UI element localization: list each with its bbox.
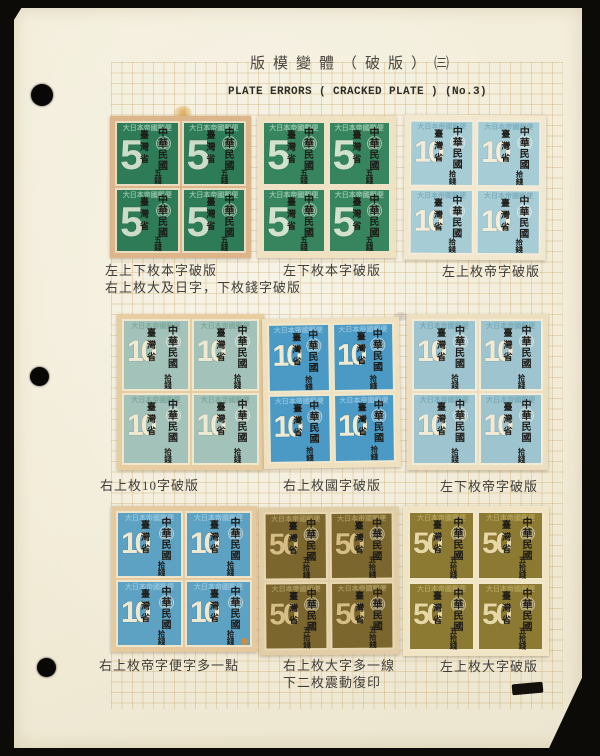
stamp-design: 大日本帝國郵便 10 臺灣省 中華民國 拾錢 xyxy=(411,122,472,185)
stamp: 大日本帝國郵便 50 臺灣省 中華民國 五拾錢 xyxy=(330,512,394,580)
overprint-denomination: 拾錢 xyxy=(514,170,525,185)
overprint-republic-of-china: 中華民國 xyxy=(233,399,248,443)
stamp: 大日本帝國郵便 10 臺灣省 中華民國 拾錢 xyxy=(116,580,183,647)
overprint-denomination: 五拾錢 xyxy=(301,626,312,649)
punch-hole xyxy=(37,658,56,677)
stamp: 大日本帝國郵便 10 臺灣省 中華民國 拾錢 xyxy=(185,511,252,578)
stamp: 大日本帝國郵便 10 臺灣省 中華民國 拾錢 xyxy=(412,319,477,391)
overprint-denomination: 五錢 xyxy=(153,236,164,251)
stamp-block: 大日本帝國郵便 10 臺灣省 中華民國 拾錢 大日本帝國郵便 10 臺灣省 中華… xyxy=(111,506,257,652)
block-caption: 左下枚本字破版 xyxy=(283,262,381,279)
stamp: 大日本帝國郵便 5 臺灣省 中華民國 五錢 xyxy=(262,188,326,253)
stamp-design: 大日本帝國郵便 10 臺灣省 中華民國 拾錢 xyxy=(478,191,539,254)
overprint-denomination: 五拾錢 xyxy=(367,555,378,578)
overprint-denomination: 拾錢 xyxy=(304,446,315,461)
overprint-taiwan-province: 臺灣省 xyxy=(432,197,445,233)
overprint-taiwan-province: 臺灣省 xyxy=(499,129,512,165)
overprint-denomination: 五拾錢 xyxy=(448,627,459,650)
stamp-design: 大日本帝國郵便 10 臺灣省 中華民國 拾錢 xyxy=(481,395,542,463)
scan-background: 版模變體（破版）㈢ PLATE ERRORS ( CRACKED PLATE )… xyxy=(0,0,600,756)
stamp-design: 大日本帝國郵便 50 臺灣省 中華民國 五拾錢 xyxy=(266,584,326,648)
overprint-republic-of-china: 中華民國 xyxy=(449,517,464,561)
caption-line: 左上下枚本字破版 xyxy=(105,262,301,279)
stamp: 大日本帝國郵便 5 臺灣省 中華民國 五錢 xyxy=(115,121,180,186)
overprint-republic-of-china: 中華民國 xyxy=(164,399,179,443)
overprint-denomination: 五錢 xyxy=(219,236,230,251)
stamp-grid: 大日本帝國郵便 5 臺灣省 中華民國 五錢 大日本帝國郵便 5 臺灣省 中華民國… xyxy=(262,121,391,253)
overprint-republic-of-china: 中華民國 xyxy=(369,399,385,443)
overprint-denomination: 拾錢 xyxy=(450,448,461,463)
stamp-design: 大日本帝國郵便 10 臺灣省 中華民國 拾錢 xyxy=(118,582,181,645)
overprint-taiwan-province: 臺灣省 xyxy=(499,198,512,234)
overprint-taiwan-province: 臺灣省 xyxy=(432,129,445,165)
overprint-taiwan-province: 臺灣省 xyxy=(435,328,448,364)
stamp-grid: 大日本帝國郵便 50 臺灣省 中華民國 五拾錢 大日本帝國郵便 50 臺灣省 中… xyxy=(264,512,395,651)
stamp-design: 大日本帝國郵便 50 臺灣省 中華民國 五拾錢 xyxy=(410,584,473,649)
overprint-denomination: 拾錢 xyxy=(450,374,461,389)
stamp-design: 大日本帝國郵便 5 臺灣省 中華民國 五錢 xyxy=(117,190,178,251)
stamp-design: 大日本帝國郵便 10 臺灣省 中華民國 拾錢 xyxy=(335,395,394,461)
overprint-republic-of-china: 中華民國 xyxy=(154,194,169,238)
overprint-republic-of-china: 中華民國 xyxy=(518,588,533,632)
block-caption: 左下枚帝字破版 xyxy=(440,478,538,495)
overprint-denomination: 拾錢 xyxy=(163,448,174,463)
overprint-denomination: 五錢 xyxy=(299,169,310,184)
overprint-taiwan-province: 臺灣省 xyxy=(138,130,151,166)
overprint-republic-of-china: 中華民國 xyxy=(448,126,463,170)
overprint-taiwan-province: 臺灣省 xyxy=(353,521,366,557)
stamp-design: 大日本帝國郵便 10 臺灣省 中華民國 拾錢 xyxy=(187,513,250,576)
overprint-taiwan-province: 臺灣省 xyxy=(287,521,300,557)
page-title-chinese: 版模變體（破版）㈢ xyxy=(250,52,550,73)
stamp-design: 大日本帝國郵便 5 臺灣省 中華民國 五錢 xyxy=(330,123,390,184)
stamp-block: 大日本帝國郵便 5 臺灣省 中華民國 五錢 大日本帝國郵便 5 臺灣省 中華民國… xyxy=(257,116,396,258)
stamp-design: 大日本帝國郵便 10 臺灣省 中華民國 拾錢 xyxy=(334,324,393,390)
overprint-taiwan-province: 臺灣省 xyxy=(287,591,300,627)
overprint-republic-of-china: 中華民國 xyxy=(517,399,532,443)
caption-line: 左上枚大字破版 xyxy=(440,658,538,675)
overprint-denomination: 拾錢 xyxy=(232,374,243,389)
overprint-taiwan-province: 臺灣省 xyxy=(500,520,513,556)
stamp: 大日本帝國郵便 50 臺灣省 中華民國 五拾錢 xyxy=(264,512,328,580)
overprint-denomination: 拾錢 xyxy=(368,374,379,389)
stamp: 大日本帝國郵便 5 臺灣省 中華民國 五錢 xyxy=(115,188,180,253)
stamp-design: 大日本帝國郵便 50 臺灣省 中華民國 五拾錢 xyxy=(266,514,326,578)
stamp: 大日本帝國郵便 5 臺灣省 中華民國 五錢 xyxy=(262,121,326,186)
stamp: 大日本帝國郵便 10 臺灣省 中華民國 拾錢 xyxy=(192,319,260,391)
overprint-taiwan-province: 臺灣省 xyxy=(205,197,218,233)
overprint-republic-of-china: 中華民國 xyxy=(451,399,466,443)
overprint-taiwan-province: 臺灣省 xyxy=(145,402,158,438)
block-caption: 左上枚帝字破版 xyxy=(442,263,540,280)
overprint-denomination: 五錢 xyxy=(364,169,375,184)
stamp: 大日本帝國郵便 10 臺灣省 中華民國 拾錢 xyxy=(409,188,474,255)
page-title-english: PLATE ERRORS ( CRACKED PLATE ) (No.3) xyxy=(228,86,548,98)
overprint-republic-of-china: 中華民國 xyxy=(226,586,241,630)
stamp: 大日本帝國郵便 50 臺灣省 中華民國 五拾錢 xyxy=(408,511,475,580)
caption-line: 下二枚震動復印 xyxy=(283,674,395,691)
stamp-design: 大日本帝國郵便 5 臺灣省 中華民國 五錢 xyxy=(184,123,245,184)
overprint-republic-of-china: 中華民國 xyxy=(451,325,466,369)
stamp: 大日本帝國郵便 10 臺灣省 中華民國 拾錢 xyxy=(267,323,330,393)
stamp-design: 大日本帝國郵便 10 臺灣省 中華民國 拾錢 xyxy=(269,325,328,391)
stamp-design: 大日本帝國郵便 10 臺灣省 中華民國 拾錢 xyxy=(481,321,542,389)
overprint-denomination: 拾錢 xyxy=(225,561,236,576)
overprint-taiwan-province: 臺灣省 xyxy=(502,328,515,364)
stamp-design: 大日本帝國郵便 10 臺灣省 中華民國 拾錢 xyxy=(194,321,258,389)
overprint-republic-of-china: 中華民國 xyxy=(154,127,169,171)
overprint-republic-of-china: 中華民國 xyxy=(157,586,172,630)
stamp-block: 大日本帝國郵便 50 臺灣省 中華民國 五拾錢 大日本帝國郵便 50 臺灣省 中… xyxy=(258,507,399,656)
overprint-denomination: 五拾錢 xyxy=(301,556,312,579)
overprint-taiwan-province: 臺灣省 xyxy=(208,589,221,625)
stamp-design: 大日本帝國郵便 50 臺灣省 中華民國 五拾錢 xyxy=(479,513,542,578)
overprint-denomination: 拾錢 xyxy=(225,630,236,645)
overprint-denomination: 五錢 xyxy=(299,236,310,251)
overprint-republic-of-china: 中華民國 xyxy=(220,127,235,171)
stamp: 大日本帝國郵便 10 臺灣省 中華民國 拾錢 xyxy=(479,319,544,391)
stamp-design: 大日本帝國郵便 10 臺灣省 中華民國 拾錢 xyxy=(124,321,188,389)
overprint-republic-of-china: 中華民國 xyxy=(515,126,530,170)
stamp-design: 大日本帝國郵便 10 臺灣省 中華民國 拾錢 xyxy=(187,582,250,645)
caption-line: 左下枚帝字破版 xyxy=(440,478,538,495)
stamp: 大日本帝國郵便 50 臺灣省 中華民國 五拾錢 xyxy=(264,582,328,650)
overprint-republic-of-china: 中華民國 xyxy=(300,127,315,171)
stamp: 大日本帝國郵便 10 臺灣省 中華民國 拾錢 xyxy=(476,189,541,256)
overprint-taiwan-province: 臺灣省 xyxy=(351,130,364,166)
overprint-denomination: 拾錢 xyxy=(447,238,458,253)
overprint-republic-of-china: 中華民國 xyxy=(157,517,172,561)
stamp: 大日本帝國郵便 5 臺灣省 中華民國 五錢 xyxy=(182,121,247,186)
punch-hole xyxy=(31,84,53,106)
overprint-denomination: 五拾錢 xyxy=(367,625,378,648)
overprint-taiwan-province: 臺灣省 xyxy=(353,591,366,627)
overprint-taiwan-province: 臺灣省 xyxy=(500,591,513,627)
caption-line: 右上枚帝字便字多一點 xyxy=(99,657,239,674)
block-caption: 右上枚帝字便字多一點 xyxy=(99,657,239,674)
stamp: 大日本帝國郵便 5 臺灣省 中華民國 五錢 xyxy=(328,121,392,186)
block-caption: 右上枚大字多一線下二枚震動復印 xyxy=(283,657,395,691)
stamp: 大日本帝國郵便 10 臺灣省 中華民國 拾錢 xyxy=(116,511,183,578)
overprint-denomination: 五拾錢 xyxy=(448,556,459,579)
stamp-design: 大日本帝國郵便 5 臺灣省 中華民國 五錢 xyxy=(330,190,390,251)
overprint-denomination: 拾錢 xyxy=(232,448,243,463)
overprint-republic-of-china: 中華民國 xyxy=(305,400,321,444)
stamp: 大日本帝國郵便 10 臺灣省 中華民國 拾錢 xyxy=(192,393,260,465)
stamp-grid: 大日本帝國郵便 10 臺灣省 中華民國 拾錢 大日本帝國郵便 10 臺灣省 中華… xyxy=(412,319,543,465)
overprint-taiwan-province: 臺灣省 xyxy=(355,331,369,367)
overprint-taiwan-province: 臺灣省 xyxy=(502,402,515,438)
stamp-design: 大日本帝國郵便 10 臺灣省 中華民國 拾錢 xyxy=(478,122,539,185)
overprint-republic-of-china: 中華民國 xyxy=(365,127,380,171)
caption-line: 右上枚國字破版 xyxy=(283,477,381,494)
overprint-taiwan-province: 臺灣省 xyxy=(356,402,370,438)
overprint-denomination: 拾錢 xyxy=(514,238,525,253)
stamp: 大日本帝國郵便 5 臺灣省 中華民國 五錢 xyxy=(328,188,392,253)
stamp: 大日本帝國郵便 10 臺灣省 中華民國 拾錢 xyxy=(333,393,396,463)
stamp-block: 大日本帝國郵便 10 臺灣省 中華民國 拾錢 大日本帝國郵便 10 臺灣省 中華… xyxy=(117,314,264,470)
stamp-design: 大日本帝國郵便 50 臺灣省 中華民國 五拾錢 xyxy=(332,584,392,648)
stamp-design: 大日本帝國郵便 10 臺灣省 中華民國 拾錢 xyxy=(414,395,475,463)
overprint-taiwan-province: 臺灣省 xyxy=(205,130,218,166)
stamp: 大日本帝國郵便 10 臺灣省 中華民國 拾錢 xyxy=(185,580,252,647)
overprint-taiwan-province: 臺灣省 xyxy=(285,197,298,233)
stamp-grid: 大日本帝國郵便 10 臺灣省 中華民國 拾錢 大日本帝國郵便 10 臺灣省 中華… xyxy=(267,322,396,464)
overprint-taiwan-province: 臺灣省 xyxy=(139,589,152,625)
overprint-taiwan-province: 臺灣省 xyxy=(290,332,304,368)
overprint-denomination: 拾錢 xyxy=(156,561,167,576)
overprint-republic-of-china: 中華民國 xyxy=(233,325,248,369)
overprint-taiwan-province: 臺灣省 xyxy=(139,520,152,556)
overprint-taiwan-province: 臺灣省 xyxy=(351,197,364,233)
stamp: 大日本帝國郵便 10 臺灣省 中華民國 拾錢 xyxy=(412,393,477,465)
stamp-design: 大日本帝國郵便 50 臺灣省 中華民國 五拾錢 xyxy=(410,513,473,578)
stamp-design: 大日本帝國郵便 50 臺灣省 中華民國 五拾錢 xyxy=(332,514,392,578)
stamp-design: 大日本帝國郵便 50 臺灣省 中華民國 五拾錢 xyxy=(479,584,542,649)
overprint-republic-of-china: 中華民國 xyxy=(365,194,380,238)
stamp-grid: 大日本帝國郵便 10 臺灣省 中華民國 拾錢 大日本帝國郵便 10 臺灣省 中華… xyxy=(116,511,252,647)
overprint-denomination: 五錢 xyxy=(219,169,230,184)
overprint-republic-of-china: 中華民國 xyxy=(515,195,530,239)
caption-line: 左下枚本字破版 xyxy=(283,262,381,279)
overprint-republic-of-china: 中華民國 xyxy=(518,517,533,561)
overprint-taiwan-province: 臺灣省 xyxy=(208,520,221,556)
overprint-republic-of-china: 中華民國 xyxy=(300,194,315,238)
stamp-design: 大日本帝國郵便 5 臺灣省 中華民國 五錢 xyxy=(117,123,178,184)
overprint-republic-of-china: 中華民國 xyxy=(368,328,384,372)
punch-hole xyxy=(30,367,49,386)
overprint-denomination: 拾錢 xyxy=(516,374,527,389)
stamp: 大日本帝國郵便 50 臺灣省 中華民國 五拾錢 xyxy=(408,582,475,651)
overprint-republic-of-china: 中華民國 xyxy=(164,325,179,369)
block-caption: 右上枚10字破版 xyxy=(100,477,199,494)
overprint-taiwan-province: 臺灣省 xyxy=(215,402,228,438)
stamp: 大日本帝國郵便 10 臺灣省 中華民國 拾錢 xyxy=(476,120,541,187)
stamp: 大日本帝國郵便 10 臺灣省 中華民國 拾錢 xyxy=(479,393,544,465)
stamp-block: 大日本帝國郵便 10 臺灣省 中華民國 拾錢 大日本帝國郵便 10 臺灣省 中華… xyxy=(404,115,547,261)
stamp-design: 大日本帝國郵便 5 臺灣省 中華民國 五錢 xyxy=(184,190,245,251)
overprint-taiwan-province: 臺灣省 xyxy=(285,130,298,166)
caption-line: 右上枚大及日字，下枚錢字破版 xyxy=(105,279,301,296)
stamp-block: 大日本帝國郵便 10 臺灣省 中華民國 拾錢 大日本帝國郵便 10 臺灣省 中華… xyxy=(407,314,548,470)
stamp-design: 大日本帝國郵便 5 臺灣省 中華民國 五錢 xyxy=(264,123,324,184)
overprint-taiwan-province: 臺灣省 xyxy=(431,591,444,627)
overprint-denomination: 五拾錢 xyxy=(517,627,528,650)
stamp: 大日本帝國郵便 10 臺灣省 中華民國 拾錢 xyxy=(332,322,395,392)
overprint-taiwan-province: 臺灣省 xyxy=(145,328,158,364)
overprint-denomination: 拾錢 xyxy=(447,169,458,184)
stamp: 大日本帝國郵便 10 臺灣省 中華民國 拾錢 xyxy=(122,393,190,465)
caption-line: 右上枚大字多一線 xyxy=(283,657,395,674)
overprint-denomination: 五拾錢 xyxy=(517,556,528,579)
stamp: 大日本帝國郵便 10 臺灣省 中華民國 拾錢 xyxy=(268,394,331,464)
overprint-republic-of-china: 中華民國 xyxy=(448,194,463,238)
stamp: 大日本帝國郵便 10 臺灣省 中華民國 拾錢 xyxy=(122,319,190,391)
stamp-grid: 大日本帝國郵便 10 臺灣省 中華民國 拾錢 大日本帝國郵便 10 臺灣省 中華… xyxy=(409,120,542,256)
overprint-republic-of-china: 中華民國 xyxy=(517,325,532,369)
stamp-grid: 大日本帝國郵便 50 臺灣省 中華民國 五拾錢 大日本帝國郵便 50 臺灣省 中… xyxy=(408,511,544,651)
overprint-republic-of-china: 中華民國 xyxy=(449,588,464,632)
stamp-design: 大日本帝國郵便 10 臺灣省 中華民國 拾錢 xyxy=(411,190,472,253)
overprint-taiwan-province: 臺灣省 xyxy=(215,328,228,364)
stamp: 大日本帝國郵便 50 臺灣省 中華民國 五拾錢 xyxy=(477,511,544,580)
overprint-denomination: 拾錢 xyxy=(303,375,314,390)
overprint-taiwan-province: 臺灣省 xyxy=(291,403,305,439)
stamp-block: 大日本帝國郵便 10 臺灣省 中華民國 拾錢 大日本帝國郵便 10 臺灣省 中華… xyxy=(262,317,401,469)
overprint-denomination: 拾錢 xyxy=(516,448,527,463)
block-caption: 右上枚國字破版 xyxy=(283,477,381,494)
overprint-denomination: 拾錢 xyxy=(163,374,174,389)
overprint-taiwan-province: 臺灣省 xyxy=(138,197,151,233)
stamp-design: 大日本帝國郵便 10 臺灣省 中華民國 拾錢 xyxy=(270,396,329,462)
block-caption: 左上枚大字破版 xyxy=(440,658,538,675)
overprint-republic-of-china: 中華民國 xyxy=(220,194,235,238)
overprint-republic-of-china: 中華民國 xyxy=(226,517,241,561)
overprint-taiwan-province: 臺灣省 xyxy=(435,402,448,438)
stamp-block: 大日本帝國郵便 5 臺灣省 中華民國 五錢 大日本帝國郵便 5 臺灣省 中華民國… xyxy=(110,116,251,258)
stamp-design: 大日本帝國郵便 10 臺灣省 中華民國 拾錢 xyxy=(124,395,188,463)
stamp-design: 大日本帝國郵便 5 臺灣省 中華民國 五錢 xyxy=(264,190,324,251)
overprint-denomination: 拾錢 xyxy=(369,445,380,460)
stamp-grid: 大日本帝國郵便 5 臺灣省 中華民國 五錢 大日本帝國郵便 5 臺灣省 中華民國… xyxy=(115,121,246,253)
stamp-grid: 大日本帝國郵便 10 臺灣省 中華民國 拾錢 大日本帝國郵便 10 臺灣省 中華… xyxy=(122,319,259,465)
overprint-denomination: 五錢 xyxy=(364,236,375,251)
stamp: 大日本帝國郵便 5 臺灣省 中華民國 五錢 xyxy=(182,188,247,253)
overprint-denomination: 五錢 xyxy=(153,169,164,184)
block-caption: 左上下枚本字破版右上枚大及日字，下枚錢字破版 xyxy=(105,262,301,296)
stamp: 大日本帝國郵便 50 臺灣省 中華民國 五拾錢 xyxy=(477,582,544,651)
overprint-taiwan-province: 臺灣省 xyxy=(431,520,444,556)
stamp-design: 大日本帝國郵便 10 臺灣省 中華民國 拾錢 xyxy=(414,321,475,389)
overprint-denomination: 拾錢 xyxy=(156,630,167,645)
caption-line: 左上枚帝字破版 xyxy=(442,263,540,280)
stamp: 大日本帝國郵便 50 臺灣省 中華民國 五拾錢 xyxy=(330,582,394,650)
stamp-block: 大日本帝國郵便 50 臺灣省 中華民國 五拾錢 大日本帝國郵便 50 臺灣省 中… xyxy=(403,506,549,656)
stamp: 大日本帝國郵便 10 臺灣省 中華民國 拾錢 xyxy=(409,120,474,187)
caption-line: 右上枚10字破版 xyxy=(100,477,199,494)
stamp-design: 大日本帝國郵便 10 臺灣省 中華民國 拾錢 xyxy=(194,395,258,463)
overprint-republic-of-china: 中華民國 xyxy=(304,329,320,373)
stamp-design: 大日本帝國郵便 10 臺灣省 中華民國 拾錢 xyxy=(118,513,181,576)
